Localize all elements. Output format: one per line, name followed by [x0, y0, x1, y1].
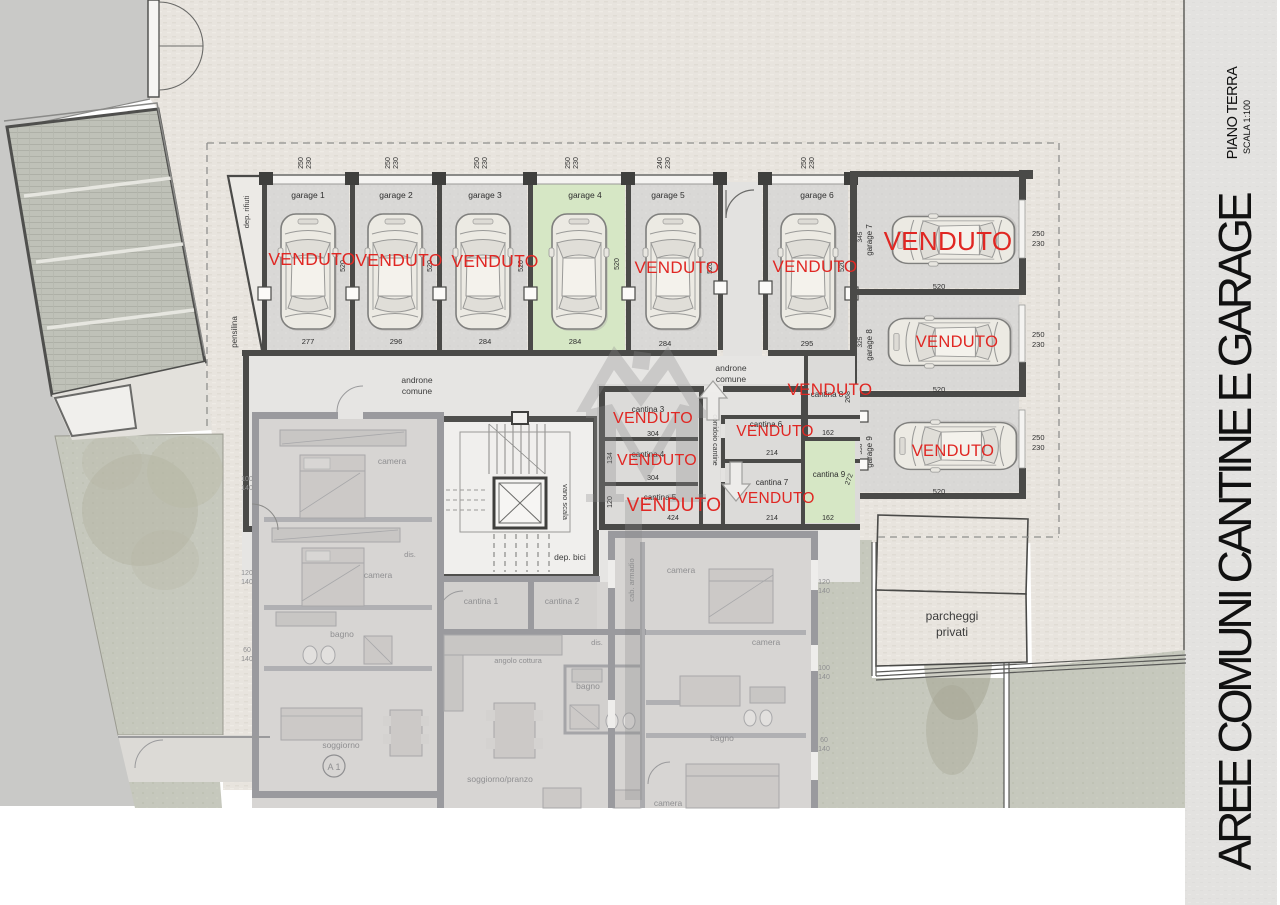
svg-text:angolo cottura: angolo cottura [494, 656, 542, 665]
svg-text:277: 277 [302, 337, 315, 346]
svg-text:VENDUTO: VENDUTO [635, 258, 720, 277]
svg-text:dep. rifiuti: dep. rifiuti [242, 195, 251, 228]
svg-text:230: 230 [306, 157, 313, 169]
svg-text:60: 60 [820, 737, 828, 744]
svg-text:240: 240 [657, 157, 664, 169]
svg-text:284: 284 [479, 337, 492, 346]
svg-text:230: 230 [1032, 239, 1045, 248]
svg-text:garage 7: garage 7 [865, 224, 874, 256]
svg-text:privati: privati [936, 625, 968, 639]
svg-text:304: 304 [647, 431, 659, 438]
svg-text:VENDUTO: VENDUTO [737, 490, 815, 507]
svg-text:140: 140 [818, 746, 830, 753]
svg-text:androne: androne [715, 363, 746, 373]
svg-text:dis.: dis. [404, 550, 416, 559]
svg-text:comune: comune [716, 374, 747, 384]
svg-text:250: 250 [1032, 433, 1045, 442]
svg-text:SCALA 1:100: SCALA 1:100 [1242, 100, 1252, 154]
svg-text:cantina 9: cantina 9 [813, 470, 846, 479]
svg-text:230: 230 [1032, 340, 1045, 349]
svg-text:cantina 7: cantina 7 [756, 478, 789, 487]
svg-text:VENDUTO: VENDUTO [617, 452, 697, 469]
svg-text:comune: comune [402, 386, 433, 396]
svg-text:camera: camera [654, 798, 683, 808]
svg-text:250: 250 [298, 157, 305, 169]
svg-text:pensilina: pensilina [230, 316, 239, 348]
svg-text:250: 250 [1032, 330, 1045, 339]
svg-text:camera: camera [752, 637, 781, 647]
svg-text:325: 325 [857, 336, 864, 347]
svg-text:garage 4: garage 4 [568, 190, 602, 200]
svg-text:295: 295 [801, 339, 814, 348]
svg-text:140: 140 [241, 485, 253, 492]
svg-text:soggiorno/pranzo: soggiorno/pranzo [467, 774, 533, 784]
svg-text:230: 230 [573, 157, 580, 169]
svg-text:VENDUTO: VENDUTO [627, 495, 722, 516]
svg-text:corridoio cantine: corridoio cantine [711, 414, 718, 465]
svg-text:garage 6: garage 6 [800, 190, 834, 200]
svg-text:VENDUTO: VENDUTO [773, 257, 858, 276]
svg-text:250: 250 [385, 157, 392, 169]
svg-text:284: 284 [659, 339, 672, 348]
svg-text:bagno: bagno [330, 629, 354, 639]
svg-text:A 1: A 1 [327, 762, 340, 772]
svg-text:garage 2: garage 2 [379, 190, 413, 200]
svg-text:AREE COMUNI CANTINE E GARAGE: AREE COMUNI CANTINE E GARAGE [1209, 193, 1261, 870]
svg-text:140: 140 [241, 656, 253, 663]
svg-text:dis.: dis. [591, 638, 603, 647]
svg-text:214: 214 [766, 515, 778, 522]
svg-text:dep. bici: dep. bici [554, 552, 586, 562]
svg-text:250: 250 [565, 157, 572, 169]
svg-text:100: 100 [818, 665, 830, 672]
svg-text:162: 162 [822, 430, 834, 437]
svg-text:230: 230 [1032, 443, 1045, 452]
svg-text:100: 100 [241, 476, 253, 483]
svg-text:cantina 2: cantina 2 [545, 596, 580, 606]
svg-text:214: 214 [766, 450, 778, 457]
svg-text:230: 230 [482, 157, 489, 169]
svg-text:520: 520 [933, 487, 946, 496]
svg-text:424: 424 [667, 515, 679, 522]
svg-text:230: 230 [809, 157, 816, 169]
svg-text:camera: camera [364, 570, 393, 580]
svg-text:soggiorno: soggiorno [322, 740, 360, 750]
svg-text:bagno: bagno [576, 681, 600, 691]
svg-text:296: 296 [390, 337, 403, 346]
svg-text:garage 5: garage 5 [651, 190, 685, 200]
svg-text:520: 520 [933, 282, 946, 291]
svg-text:250: 250 [1032, 229, 1045, 238]
svg-text:VENDUTO: VENDUTO [268, 249, 355, 269]
svg-text:bagno: bagno [710, 733, 734, 743]
svg-text:camera: camera [667, 565, 696, 575]
svg-text:VENDUTO: VENDUTO [355, 250, 442, 270]
svg-text:162: 162 [822, 515, 834, 522]
svg-text:vano scala: vano scala [561, 484, 570, 521]
svg-text:140: 140 [818, 674, 830, 681]
svg-text:250: 250 [801, 157, 808, 169]
svg-text:60: 60 [243, 647, 251, 654]
svg-text:garage 1: garage 1 [291, 190, 325, 200]
svg-text:androne: androne [401, 375, 432, 385]
svg-text:camera: camera [378, 456, 407, 466]
svg-text:250: 250 [474, 157, 481, 169]
svg-text:284: 284 [569, 337, 582, 346]
svg-text:VENDUTO: VENDUTO [884, 226, 1013, 256]
svg-text:520: 520 [614, 258, 621, 270]
svg-text:PIANO TERRA: PIANO TERRA [1225, 66, 1241, 159]
svg-text:VENDUTO: VENDUTO [912, 442, 994, 460]
svg-text:parcheggi: parcheggi [926, 609, 979, 623]
svg-text:garage 8: garage 8 [865, 329, 874, 361]
svg-text:230: 230 [665, 157, 672, 169]
svg-text:VENDUTO: VENDUTO [613, 410, 693, 427]
svg-text:garage 3: garage 3 [468, 190, 502, 200]
svg-text:120: 120 [241, 570, 253, 577]
svg-text:140: 140 [241, 579, 253, 586]
svg-text:345: 345 [857, 231, 864, 242]
svg-text:VENDUTO: VENDUTO [451, 251, 538, 271]
svg-text:VENDUTO: VENDUTO [916, 333, 998, 351]
svg-text:140: 140 [818, 588, 830, 595]
svg-text:VENDUTO: VENDUTO [736, 423, 814, 440]
svg-text:520: 520 [933, 385, 946, 394]
svg-text:120: 120 [818, 579, 830, 586]
svg-text:cantina 1: cantina 1 [464, 596, 499, 606]
svg-text:VENDUTO: VENDUTO [788, 380, 873, 399]
svg-text:230: 230 [393, 157, 400, 169]
